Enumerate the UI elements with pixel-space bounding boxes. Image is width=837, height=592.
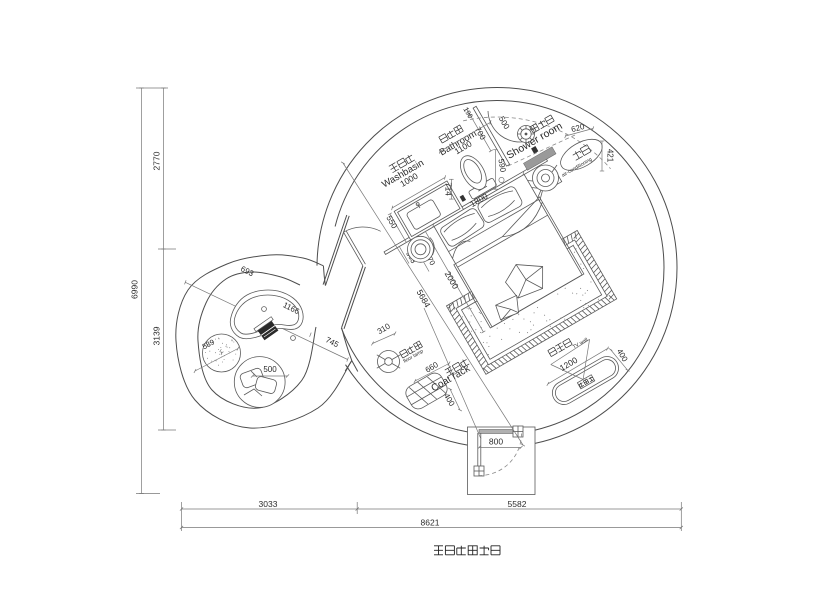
svg-text:Shower room: Shower room [504, 120, 564, 162]
svg-text:5684: 5684 [415, 288, 433, 310]
svg-text:745: 745 [324, 335, 340, 349]
svg-text:590: 590 [496, 158, 507, 173]
svg-text:3033: 3033 [259, 499, 278, 509]
svg-text:800: 800 [489, 437, 503, 447]
svg-text:400: 400 [442, 392, 457, 409]
svg-text:400: 400 [615, 347, 630, 364]
svg-text:2770: 2770 [152, 151, 162, 170]
svg-text:421: 421 [606, 149, 615, 163]
svg-text:6990: 6990 [130, 280, 140, 299]
svg-text:714: 714 [444, 182, 453, 196]
svg-text:500: 500 [263, 365, 277, 374]
svg-text:310: 310 [376, 321, 393, 336]
svg-text:3139: 3139 [152, 326, 162, 345]
svg-text:620: 620 [570, 122, 586, 134]
svg-text:8621: 8621 [421, 518, 440, 528]
svg-text:693: 693 [239, 264, 255, 278]
svg-text:5582: 5582 [508, 499, 527, 509]
svg-text:660: 660 [424, 360, 441, 375]
svg-text:TV wall: TV wall [572, 337, 589, 350]
